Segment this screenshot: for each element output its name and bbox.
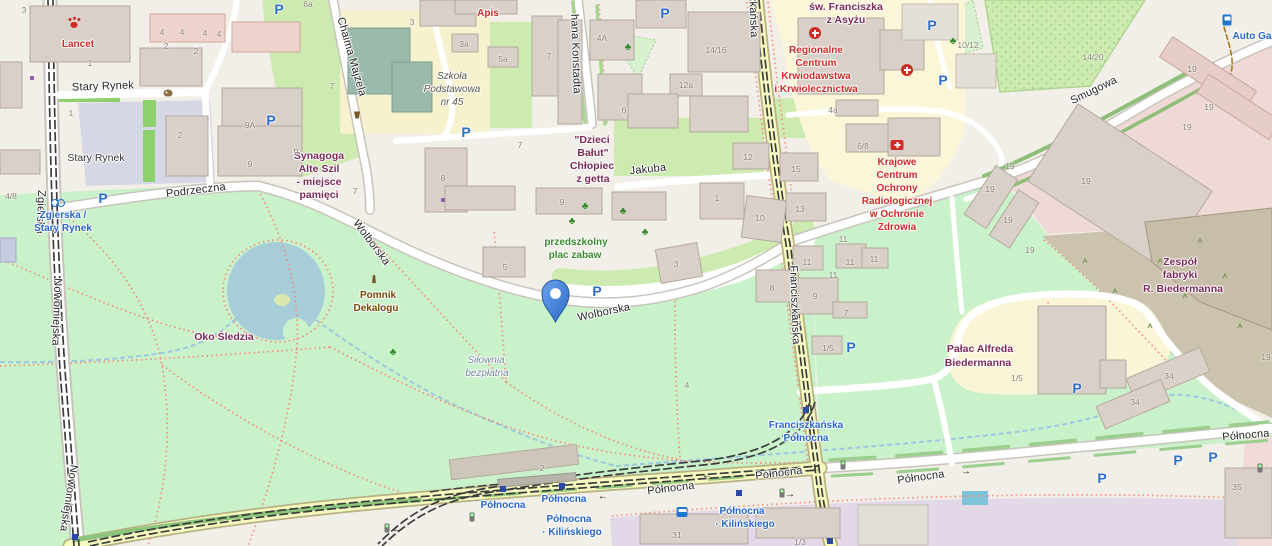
map-pin[interactable] bbox=[539, 278, 572, 324]
map-canvas[interactable]: ZgierskaNowomiejskaNowomiejskaStary Ryne… bbox=[0, 0, 1272, 546]
pin-icon bbox=[539, 278, 572, 324]
map-graphics bbox=[0, 0, 1272, 546]
